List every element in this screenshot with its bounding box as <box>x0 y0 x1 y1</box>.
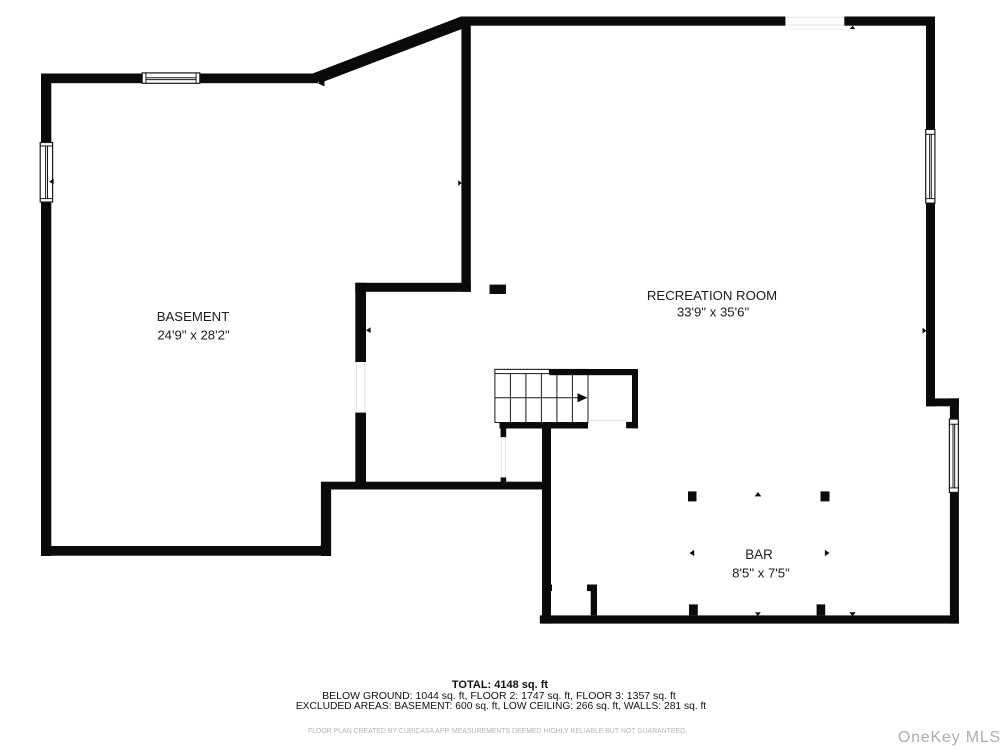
svg-text:33'9" x 35'6": 33'9" x 35'6" <box>677 305 750 320</box>
svg-text:OneKey MLS: OneKey MLS <box>898 729 1000 746</box>
svg-text:RECREATION ROOM: RECREATION ROOM <box>647 288 777 303</box>
svg-text:BAR: BAR <box>745 547 773 562</box>
svg-text:24'9" x 28'2": 24'9" x 28'2" <box>157 328 230 343</box>
svg-text:EXCLUDED AREAS: BASEMENT: 600: EXCLUDED AREAS: BASEMENT: 600 sq. ft, LO… <box>296 701 706 712</box>
svg-text:8'5" x 7'5": 8'5" x 7'5" <box>732 566 790 581</box>
svg-text:BASEMENT: BASEMENT <box>157 309 230 324</box>
svg-text:FLOOR PLAN CREATED BY CUBICASA: FLOOR PLAN CREATED BY CUBICASA APP. MEAS… <box>308 728 687 735</box>
